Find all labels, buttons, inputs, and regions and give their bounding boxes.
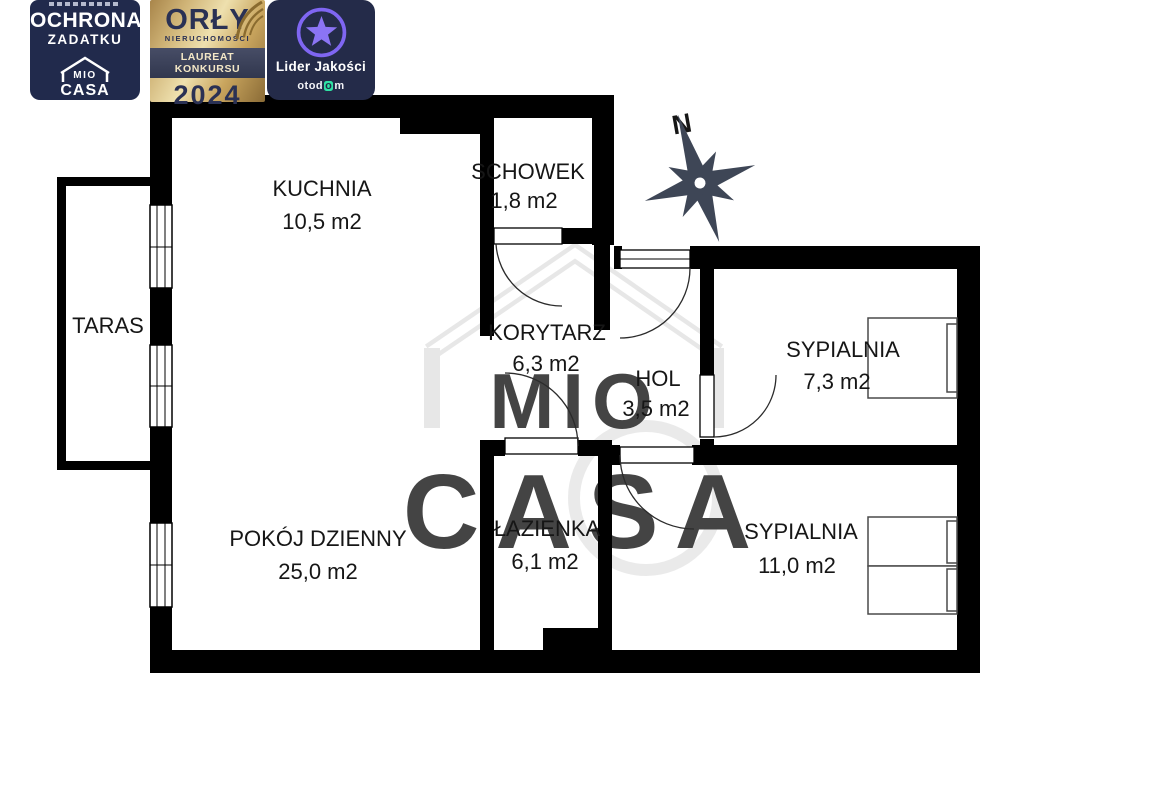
badge-deposit-protection: OCHRONA ZADATKU MIO CASA [30,0,140,100]
room-label-kuchnia: KUCHNIA [272,176,371,201]
room-area-sypialnia-1: 7,3 m2 [803,369,870,394]
bed-bedroom-2 [868,517,957,614]
room-area-sypialnia-2: 11,0 m2 [758,553,836,578]
window [150,205,172,288]
room-label-taras: TARAS [72,313,144,338]
otodom-logo-pre: otod [297,80,323,92]
room-label-sypialnia-2: SYPIALNIA [744,519,858,544]
otodom-logo-post: m [334,80,344,92]
quality-title: Lider Jakości [267,60,375,74]
room-area-hol: 3,5 m2 [622,396,689,421]
windows [150,205,172,607]
floorplan-page: MIO CASA [0,0,1170,785]
room-area-korytarz: 6,3 m2 [512,351,579,376]
floor-plan: MIO CASA [0,0,1170,785]
compass-rose: N [623,97,775,260]
badge-deposit-topline [49,2,121,6]
compass-star [623,97,775,260]
room-label-pokoj-dzienny: POKÓJ DZIENNY [229,526,407,551]
badge-deposit-line1: OCHRONA [30,9,140,32]
window [150,523,172,607]
badge-otodom-quality: Lider Jakości otodom [267,0,375,100]
room-label-schowek: SCHOWEK [471,159,585,184]
watermark-bottom: CASA [403,453,767,571]
room-area-lazienka: 6,1 m2 [511,549,578,574]
room-label-korytarz: KORYTARZ [488,320,606,345]
miocasa-logo: MIO CASA [52,51,118,99]
window [150,345,172,427]
miocasa-logo-bottom: CASA [60,82,109,99]
badge-orly-award: ORŁY NIERUCHOMOŚCI LAUREAT KONKURSU 2024 [150,0,265,102]
room-label-lazienka: ŁAZIENKA [494,516,601,541]
furniture [868,318,957,614]
otodom-logo-o: o [324,81,333,91]
room-area-schowek: 1,8 m2 [490,188,557,213]
room-label-hol: HOL [635,366,680,391]
miocasa-logo-top: MIO [73,70,96,81]
room-label-sypialnia-1: SYPIALNIA [786,337,900,362]
award-year: 2024 [150,80,265,111]
otodom-logo: otodom [267,80,375,92]
room-area-pokoj-dzienny: 25,0 m2 [278,559,358,584]
award-ribbon: LAUREAT KONKURSU [150,48,265,78]
feather-icon [226,1,264,43]
room-area-kuchnia: 10,5 m2 [282,209,362,234]
door-bedroom-1 [700,375,776,437]
badge-deposit-line2: ZADATKU [30,32,140,47]
star-icon [294,5,349,60]
